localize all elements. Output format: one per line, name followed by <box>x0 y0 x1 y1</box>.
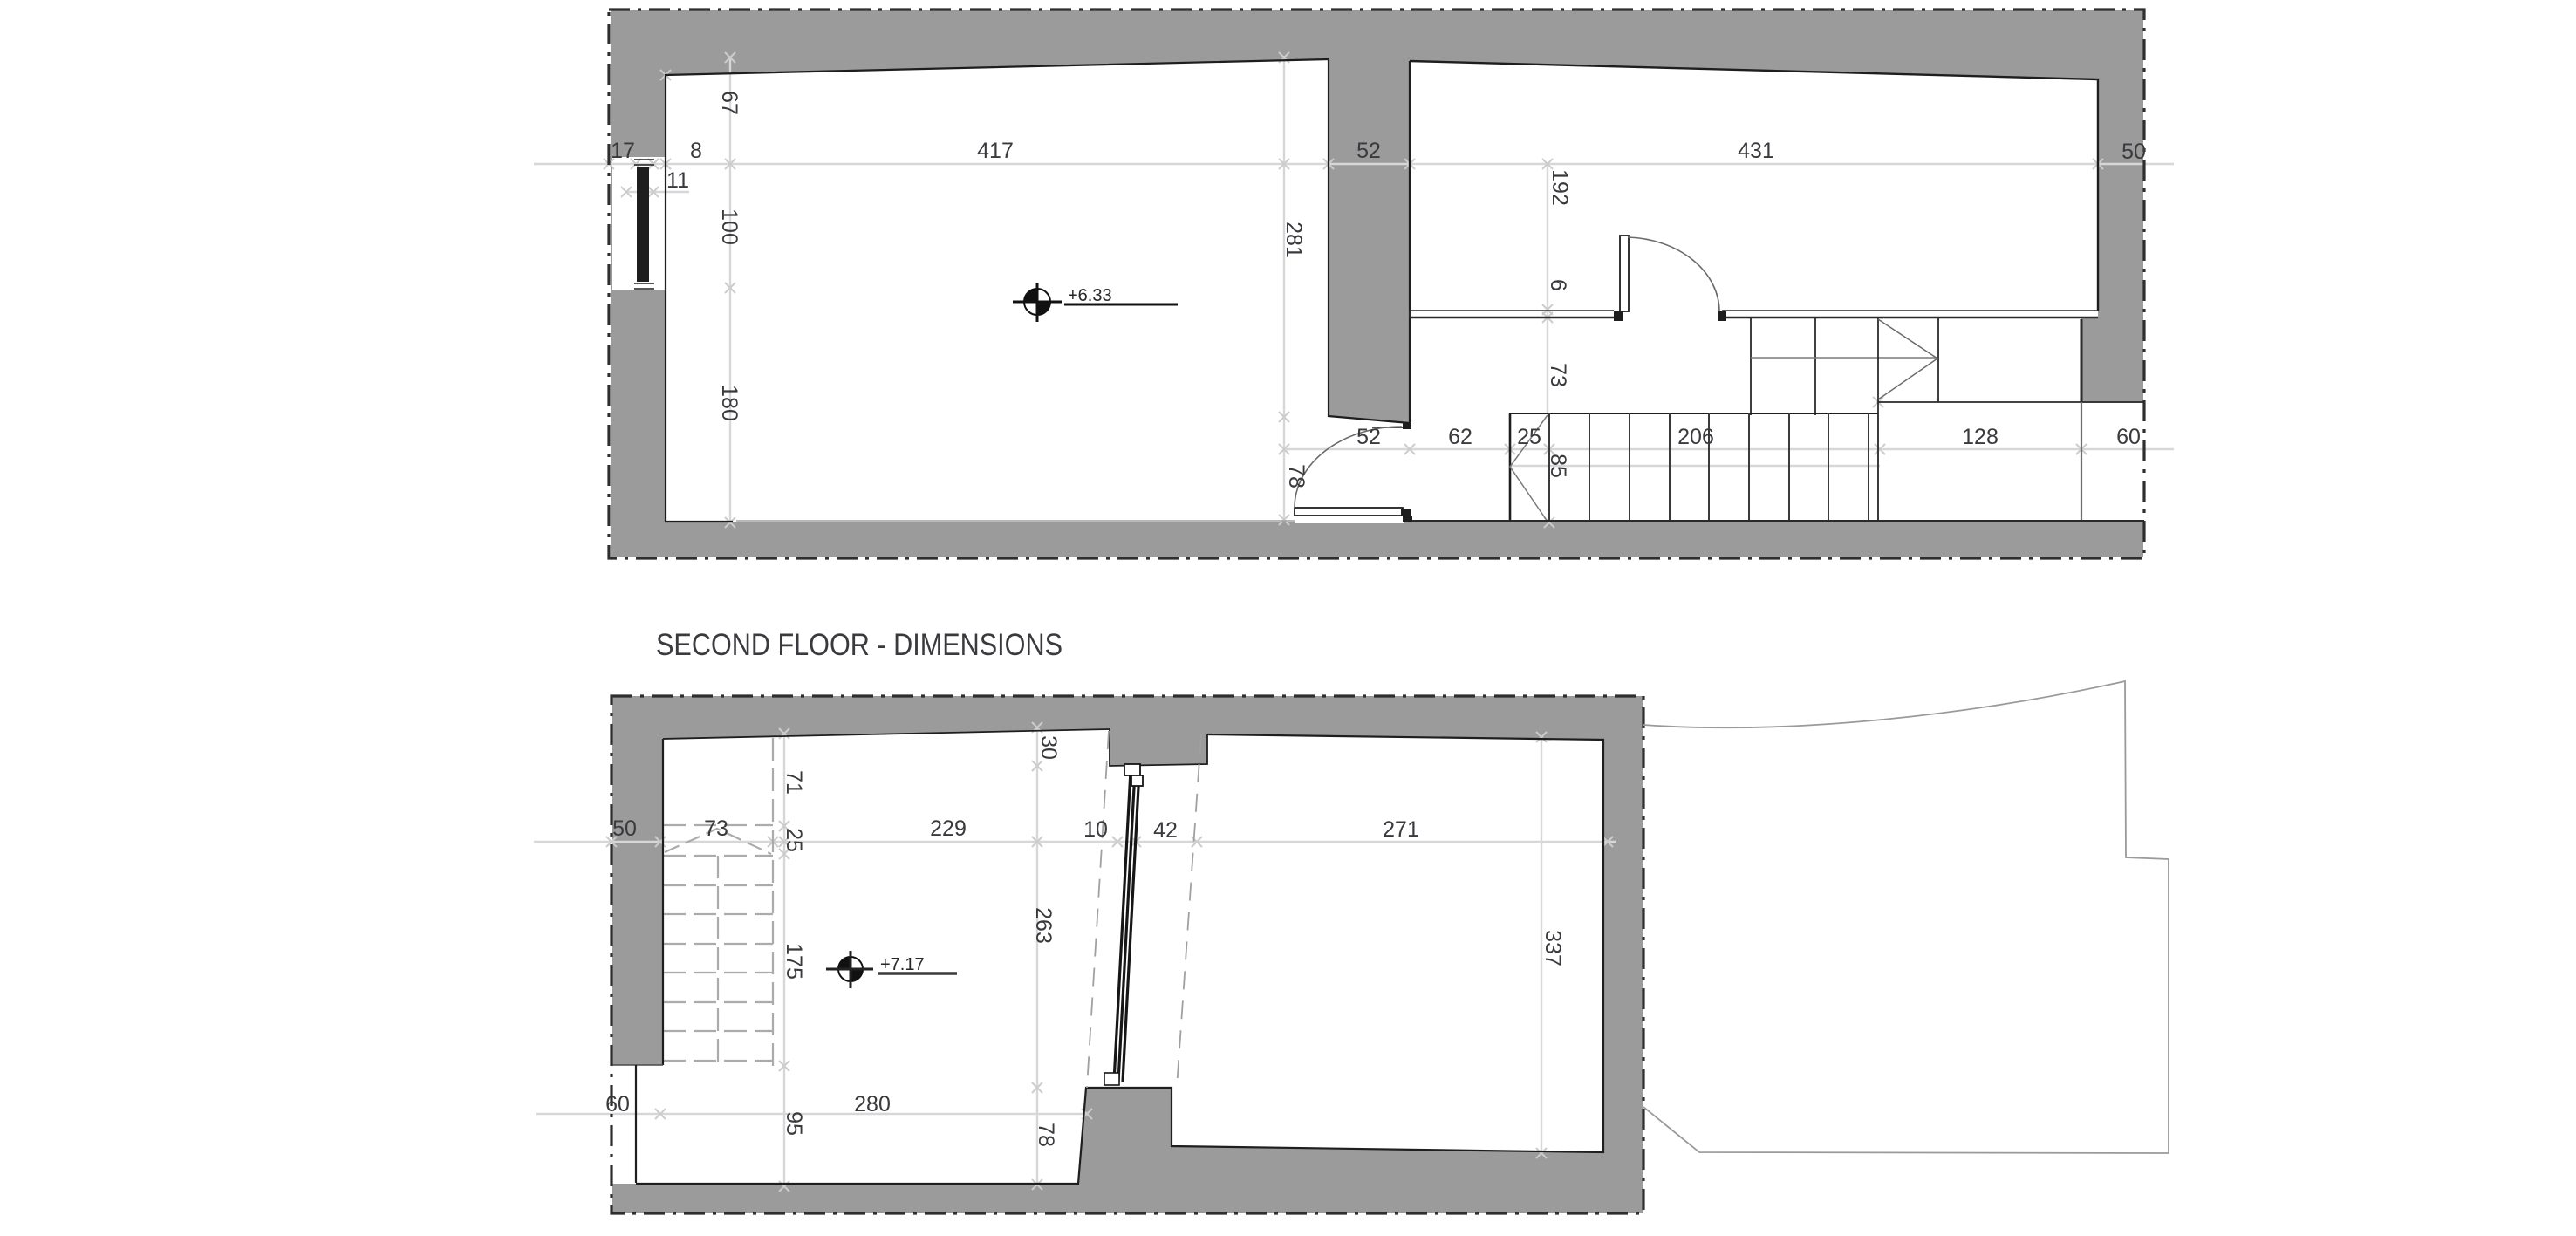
svg-text:128: 128 <box>1962 425 1999 449</box>
svg-text:42: 42 <box>1153 818 1178 843</box>
svg-text:78: 78 <box>1034 1123 1058 1147</box>
svg-text:280: 280 <box>854 1092 891 1116</box>
svg-text:180: 180 <box>717 385 741 421</box>
svg-text:175: 175 <box>782 943 806 980</box>
svg-text:73: 73 <box>1546 363 1570 387</box>
svg-text:52: 52 <box>1356 425 1381 449</box>
svg-text:417: 417 <box>977 139 1014 163</box>
svg-text:60: 60 <box>2116 425 2141 449</box>
svg-text:73: 73 <box>704 816 728 841</box>
svg-text:10: 10 <box>1083 817 1108 842</box>
svg-text:50: 50 <box>2122 140 2146 164</box>
svg-text:+6.33: +6.33 <box>1068 286 1112 305</box>
svg-text:67: 67 <box>717 91 741 115</box>
svg-text:17: 17 <box>611 139 635 163</box>
svg-text:85: 85 <box>1546 454 1570 478</box>
svg-text:78: 78 <box>1284 464 1308 488</box>
svg-text:263: 263 <box>1031 907 1056 944</box>
svg-text:71: 71 <box>782 770 806 795</box>
svg-text:50: 50 <box>612 816 637 841</box>
svg-text:8: 8 <box>690 139 702 163</box>
svg-text:192: 192 <box>1548 169 1572 206</box>
svg-text:281: 281 <box>1281 222 1306 258</box>
svg-text:337: 337 <box>1541 930 1565 966</box>
svg-text:95: 95 <box>782 1111 806 1136</box>
svg-text:62: 62 <box>1448 425 1472 449</box>
svg-text:271: 271 <box>1383 817 1419 842</box>
svg-text:52: 52 <box>1356 139 1381 163</box>
svg-text:11: 11 <box>666 168 689 193</box>
svg-text:206: 206 <box>1677 425 1714 449</box>
svg-text:60: 60 <box>605 1092 630 1116</box>
svg-text:25: 25 <box>1517 425 1541 449</box>
svg-text:30: 30 <box>1036 735 1061 760</box>
svg-text:100: 100 <box>717 208 741 245</box>
svg-text:SECOND FLOOR - DIMENSIONS: SECOND FLOOR - DIMENSIONS <box>656 628 1063 662</box>
svg-text:+7.17: +7.17 <box>880 955 925 974</box>
svg-text:6: 6 <box>1546 279 1570 291</box>
svg-text:25: 25 <box>782 828 806 852</box>
svg-text:229: 229 <box>930 816 967 841</box>
svg-text:431: 431 <box>1738 139 1774 163</box>
